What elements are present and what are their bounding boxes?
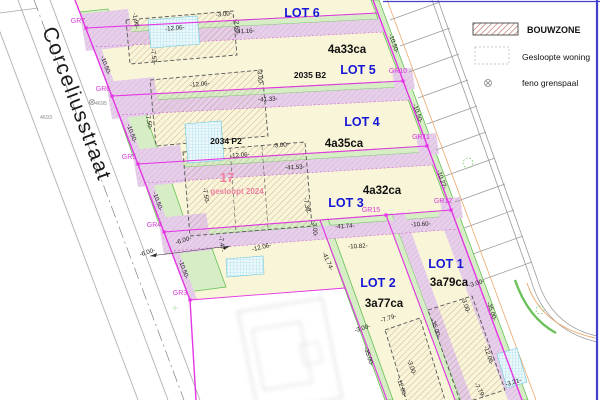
demolished-outline-swatch bbox=[475, 47, 509, 64]
dimension-label: -3.00- bbox=[255, 69, 263, 86]
legend-label-feno-grenspaal: feno grenspaal bbox=[522, 78, 578, 88]
dimension-label: -41.74- bbox=[335, 222, 355, 230]
demolished-house-number: 17 bbox=[220, 170, 234, 185]
gr-point-marker bbox=[449, 208, 452, 211]
legend: BOUWZONE Gesloopte woning feno grenspaal bbox=[473, 23, 590, 88]
dimension-label: -41.53- bbox=[285, 163, 305, 171]
lot-name-label: LOT 4 bbox=[344, 115, 379, 129]
dimension-label: -41.33- bbox=[258, 95, 278, 103]
street-line bbox=[0, 8, 38, 13]
gr-point-label: GR15 bbox=[362, 207, 380, 214]
dimension-label: -6.00- bbox=[139, 247, 157, 259]
gr-point-marker bbox=[425, 144, 428, 147]
cross-marker bbox=[172, 305, 178, 311]
dimension-label: -10.60- bbox=[411, 220, 431, 228]
lot-area-label: 4a35ca bbox=[325, 138, 364, 150]
street-parcel-number: 4693 bbox=[40, 115, 52, 121]
parking-stall-line bbox=[464, 210, 514, 228]
feno-grenspaal-icon bbox=[90, 100, 94, 104]
dimension-label: -3.00- bbox=[216, 10, 233, 18]
lot-name-label: LOT 3 bbox=[328, 196, 363, 210]
tree-marker bbox=[463, 158, 473, 168]
gr-point-marker bbox=[384, 213, 387, 216]
road-curve-green bbox=[515, 280, 556, 333]
street-parcel-number: 4695 bbox=[95, 101, 107, 107]
lot-area-label: 4a32ca bbox=[363, 185, 402, 197]
gr-point-label: GR11 bbox=[412, 134, 430, 141]
site-plan: Corceliusstraat 46954693 2035 B2 2034 P2… bbox=[0, 0, 600, 400]
parking-stall-line bbox=[390, 2, 440, 20]
road-curve-orange bbox=[527, 283, 595, 338]
dimension-label: -2.60- bbox=[232, 19, 240, 36]
gr-point-label: GR12 bbox=[434, 198, 452, 205]
site-plan-page: Corceliusstraat 46954693 2035 B2 2034 P2… bbox=[0, 0, 600, 400]
gr-point-label: GR6 bbox=[96, 86, 111, 93]
lot-area-label: 4a33ca bbox=[328, 44, 367, 56]
bouwzone-hatch-swatch bbox=[473, 23, 518, 35]
blurred-outline bbox=[238, 298, 342, 400]
gr-point-label: GR3 bbox=[173, 290, 188, 297]
gr-point-marker bbox=[401, 79, 404, 82]
lot-area-label: 3a79ca bbox=[430, 277, 469, 289]
feno-marker-symbol bbox=[486, 81, 490, 85]
parking-stall-line bbox=[427, 106, 477, 124]
dimension-label: -3.00- bbox=[310, 221, 318, 238]
dimension-label: -3.00- bbox=[273, 141, 290, 149]
gr-point-label: GR5 bbox=[122, 154, 137, 161]
parcel-number: 2034 P2 bbox=[210, 136, 242, 146]
parking-stall-line bbox=[409, 54, 459, 72]
demolished-note: gesloopt 2024 bbox=[210, 187, 264, 196]
dimension-label: -10.82- bbox=[348, 242, 368, 250]
crosshatch-patch bbox=[226, 256, 264, 277]
legend-label-gesloopte-woning: Gesloopte woning bbox=[522, 52, 590, 62]
blurred-outline bbox=[252, 322, 312, 390]
gr-point-marker bbox=[84, 26, 87, 29]
parking-stall-line bbox=[455, 184, 505, 202]
gr-point-marker bbox=[110, 94, 113, 97]
lot-name-label: LOT 2 bbox=[360, 276, 395, 290]
parking-stall-line bbox=[436, 132, 486, 150]
gr-point-marker bbox=[162, 230, 165, 233]
lot-name-label: LOT 6 bbox=[284, 6, 319, 20]
gr-point-label: GR10 bbox=[389, 68, 407, 75]
lot-area-label: 3a77ca bbox=[365, 298, 404, 310]
legend-label-bouwzone: BOUWZONE bbox=[527, 25, 581, 35]
gr-point-label: GR4 bbox=[147, 222, 162, 229]
parcel-number: 2035 B2 bbox=[294, 70, 326, 80]
parking-stall-line bbox=[445, 158, 495, 176]
lot-name-label: LOT 5 bbox=[340, 63, 375, 77]
gr-point-marker bbox=[136, 162, 139, 165]
blurred-existing-building bbox=[238, 298, 342, 400]
gr-point-marker bbox=[188, 298, 191, 301]
parking-stall-line bbox=[418, 80, 468, 98]
parking-stall-line bbox=[482, 262, 532, 280]
lot-name-label: LOT 1 bbox=[428, 257, 463, 271]
blurred-outline bbox=[300, 342, 322, 365]
gr-point-label: GR7 bbox=[71, 18, 86, 25]
